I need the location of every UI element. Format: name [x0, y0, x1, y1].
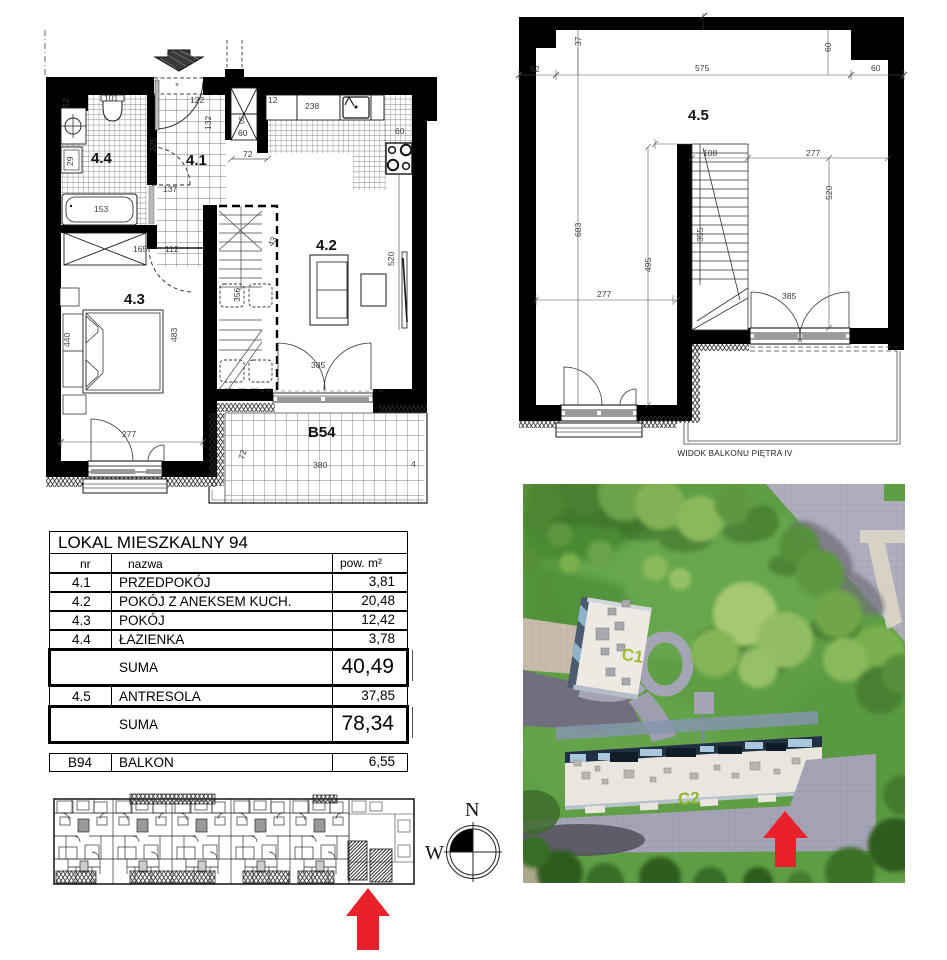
svg-text:165: 165 [133, 244, 147, 254]
svg-text:101: 101 [104, 93, 118, 103]
svg-text:×: × [175, 82, 179, 89]
svg-text:132: 132 [203, 116, 213, 130]
svg-text:B54: B54 [308, 424, 336, 441]
svg-text:WIDOK BALKONU PIĘTRA IV: WIDOK BALKONU PIĘTRA IV [677, 449, 792, 458]
svg-text:C1: C1 [620, 645, 644, 667]
svg-text:05: 05 [239, 116, 246, 124]
svg-text:4.2: 4.2 [316, 237, 337, 254]
svg-text:683: 683 [573, 223, 583, 237]
svg-text:4.5: 4.5 [688, 107, 709, 124]
svg-text:N: N [465, 799, 479, 821]
svg-text:60: 60 [871, 63, 881, 73]
svg-text:277: 277 [122, 429, 136, 439]
svg-text:4.1: 4.1 [186, 152, 207, 169]
svg-text:4.4: 4.4 [91, 150, 113, 167]
svg-text:356: 356 [232, 288, 242, 302]
svg-text:52: 52 [61, 98, 71, 108]
svg-text:108: 108 [703, 148, 717, 158]
svg-text:483: 483 [169, 328, 179, 342]
svg-text:575: 575 [695, 63, 709, 73]
svg-text:4: 4 [411, 459, 416, 469]
svg-text:520: 520 [824, 186, 834, 200]
svg-text:277: 277 [806, 148, 820, 158]
svg-text:520: 520 [386, 252, 396, 266]
svg-text:385: 385 [311, 360, 325, 370]
svg-text:37: 37 [573, 36, 583, 46]
svg-text:W: W [425, 842, 444, 864]
svg-text:355: 355 [695, 228, 705, 242]
svg-text:122: 122 [190, 95, 204, 105]
svg-text:238: 238 [305, 101, 319, 111]
svg-text:52: 52 [530, 64, 540, 74]
svg-text:137: 137 [163, 184, 177, 194]
svg-text:225: 225 [148, 138, 158, 152]
svg-text:29: 29 [65, 156, 75, 166]
svg-text:153: 153 [94, 204, 108, 214]
svg-text:277: 277 [597, 289, 611, 299]
svg-text:495: 495 [643, 258, 653, 272]
svg-text:385: 385 [782, 291, 796, 301]
svg-text:72: 72 [243, 149, 253, 159]
svg-text:440: 440 [62, 333, 72, 347]
svg-text:112: 112 [165, 244, 179, 254]
svg-text:60: 60 [395, 126, 405, 136]
svg-text:60: 60 [238, 128, 248, 138]
svg-text:4.3: 4.3 [124, 291, 145, 308]
svg-text:380: 380 [313, 460, 327, 470]
svg-text:60: 60 [823, 42, 833, 52]
svg-text:12: 12 [268, 95, 278, 105]
svg-text:C2: C2 [677, 788, 700, 808]
